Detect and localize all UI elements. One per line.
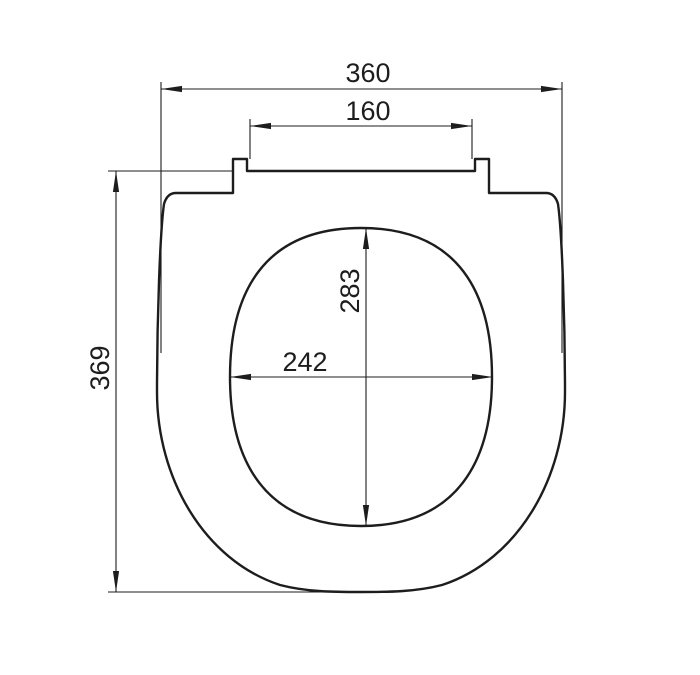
- arrow-up-icon: [363, 228, 369, 249]
- dimension-overall-depth: 369: [85, 171, 362, 592]
- arrow-left-icon: [230, 374, 251, 380]
- arrow-down-icon: [113, 571, 119, 592]
- arrow-left-icon: [161, 86, 182, 92]
- dimension-label-overall-depth: 369: [85, 345, 115, 390]
- arrow-right-icon: [541, 86, 562, 92]
- arrow-up-icon: [113, 171, 119, 192]
- seat-dimension-diagram: 360 160 369 283: [0, 0, 700, 675]
- dimension-label-overall-width: 360: [345, 58, 390, 88]
- dimension-hinge-spacing: 160: [250, 96, 472, 159]
- arrow-right-icon: [451, 123, 472, 129]
- arrow-down-icon: [363, 505, 369, 526]
- arrow-left-icon: [250, 123, 271, 129]
- dimension-label-opening-width: 242: [282, 347, 327, 377]
- dimension-label-opening-depth: 283: [335, 268, 365, 313]
- dimension-opening-width: 242: [230, 347, 493, 380]
- dimension-label-hinge-spacing: 160: [345, 96, 390, 126]
- technical-drawing-canvas: 360 160 369 283: [0, 0, 700, 675]
- arrow-right-icon: [472, 374, 493, 380]
